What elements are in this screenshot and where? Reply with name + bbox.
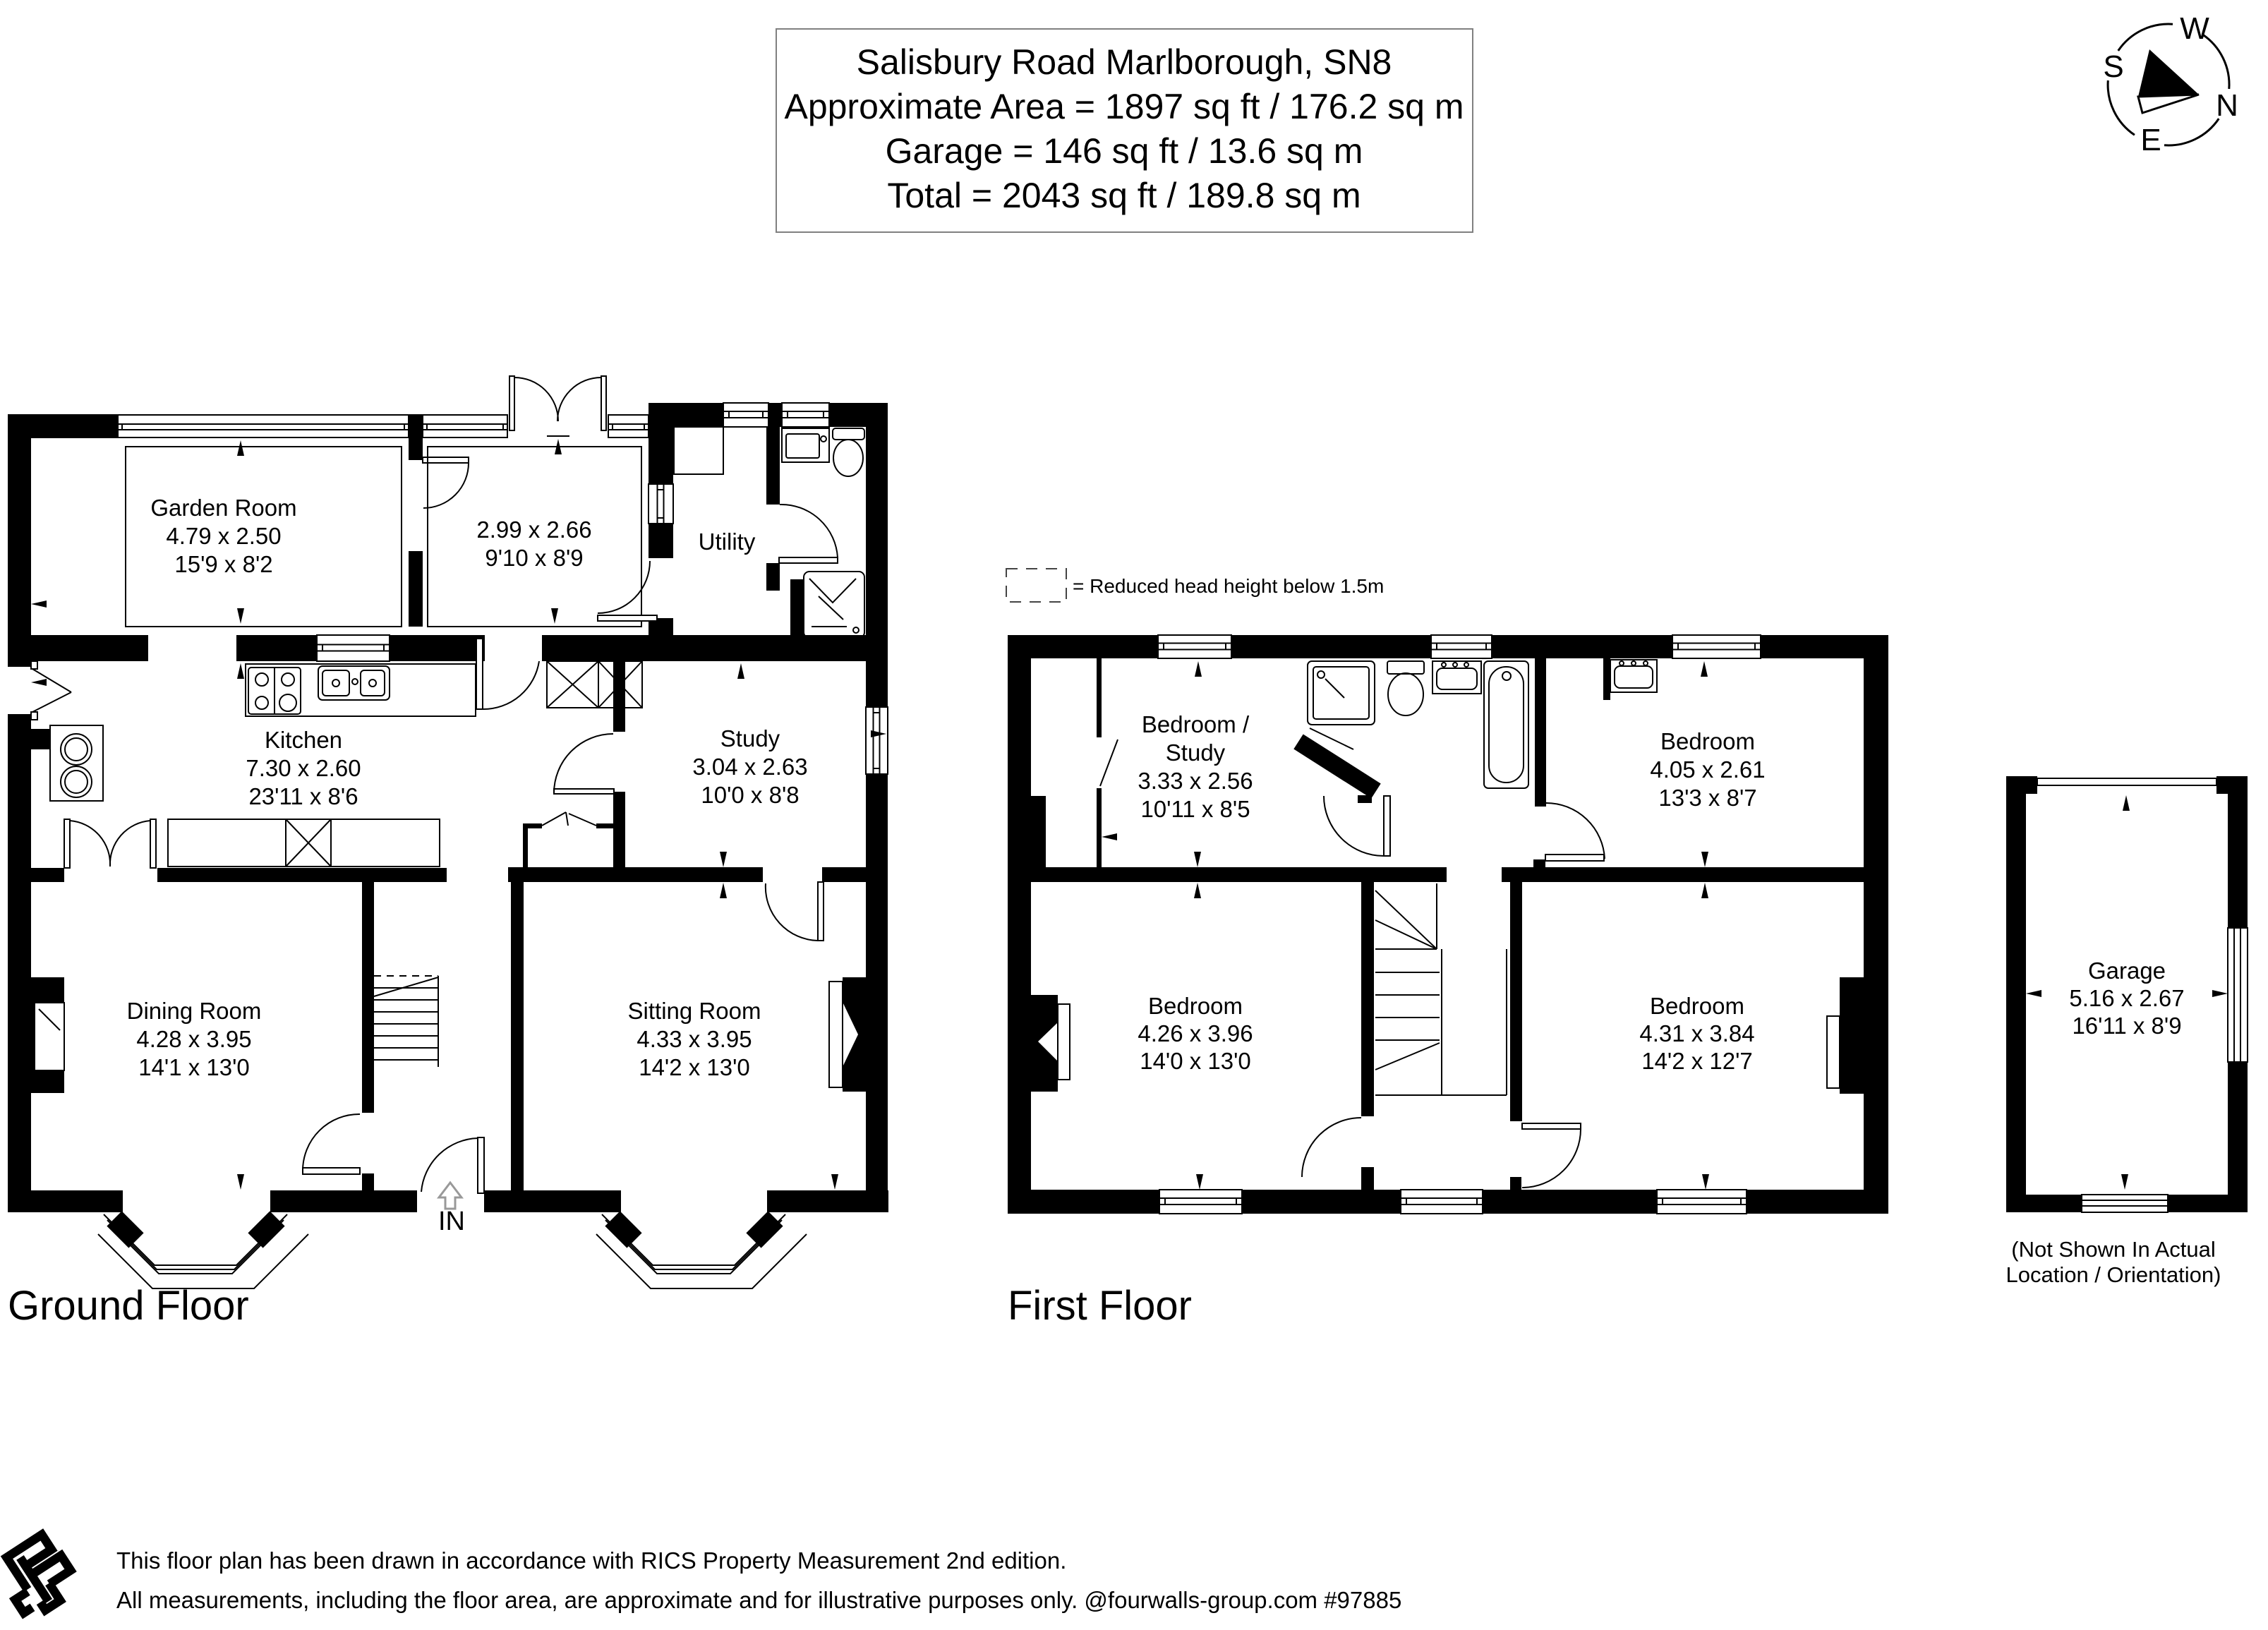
- svg-text:10'0 x 8'8: 10'0 x 8'8: [701, 782, 799, 808]
- svg-text:First Floor: First Floor: [1008, 1283, 1192, 1329]
- svg-text:10'11 x 8'5: 10'11 x 8'5: [1140, 796, 1250, 822]
- svg-text:14'0 x 13'0: 14'0 x 13'0: [1140, 1048, 1251, 1074]
- svg-text:All measurements, including th: All measurements, including the floor ar…: [116, 1587, 1401, 1613]
- svg-text:4.33 x 3.95: 4.33 x 3.95: [637, 1026, 752, 1052]
- svg-text:Kitchen: Kitchen: [265, 727, 342, 753]
- svg-text:2.99 x 2.66: 2.99 x 2.66: [476, 517, 591, 543]
- svg-text:Sitting Room: Sitting Room: [628, 998, 761, 1024]
- svg-text:14'2 x 13'0: 14'2 x 13'0: [639, 1054, 750, 1080]
- svg-text:Garden Room: Garden Room: [150, 495, 296, 521]
- svg-text:4.31 x 3.84: 4.31 x 3.84: [1639, 1020, 1754, 1046]
- svg-text:Approximate Area = 1897 sq ft: Approximate Area = 1897 sq ft / 176.2 sq…: [784, 87, 1464, 126]
- svg-text:W: W: [2180, 11, 2209, 46]
- svg-text:This floor plan has been drawn: This floor plan has been drawn in accord…: [116, 1547, 1066, 1574]
- svg-text:Bedroom: Bedroom: [1650, 993, 1744, 1019]
- svg-text:14'1 x 13'0: 14'1 x 13'0: [138, 1054, 250, 1080]
- svg-text:Utility: Utility: [699, 529, 756, 555]
- svg-text:IN: IN: [438, 1207, 465, 1236]
- svg-text:Location / Orientation): Location / Orientation): [2005, 1262, 2221, 1287]
- svg-text:Garage = 146 sq ft / 13.6 sq m: Garage = 146 sq ft / 13.6 sq m: [886, 131, 1363, 171]
- svg-text:4.28 x 3.95: 4.28 x 3.95: [136, 1026, 251, 1052]
- svg-text:4.26 x 3.96: 4.26 x 3.96: [1138, 1020, 1253, 1046]
- svg-text:Study: Study: [720, 725, 780, 751]
- svg-text:16'11 x 8'9: 16'11 x 8'9: [2072, 1013, 2181, 1039]
- svg-text:Bedroom: Bedroom: [1148, 993, 1243, 1019]
- svg-text:Bedroom /: Bedroom /: [1142, 711, 1250, 737]
- svg-text:= Reduced head height below 1.: = Reduced head height below 1.5m: [1073, 575, 1384, 597]
- svg-text:(Not Shown In Actual: (Not Shown In Actual: [2011, 1237, 2216, 1262]
- svg-text:14'2 x 12'7: 14'2 x 12'7: [1641, 1048, 1753, 1074]
- svg-text:4.79 x 2.50: 4.79 x 2.50: [166, 523, 281, 549]
- svg-text:Dining Room: Dining Room: [127, 998, 262, 1024]
- svg-text:Salisbury Road Marlborough, SN: Salisbury Road Marlborough, SN8: [857, 42, 1392, 82]
- svg-text:3.33 x 2.56: 3.33 x 2.56: [1138, 768, 1253, 794]
- svg-text:3.04 x 2.63: 3.04 x 2.63: [692, 754, 807, 780]
- svg-text:Total = 2043 sq ft / 189.8 sq: Total = 2043 sq ft / 189.8 sq m: [887, 176, 1361, 215]
- svg-text:7.30 x 2.60: 7.30 x 2.60: [246, 755, 361, 781]
- svg-text:23'11 x 8'6: 23'11 x 8'6: [248, 783, 358, 809]
- svg-text:S: S: [2103, 49, 2123, 84]
- svg-text:Bedroom: Bedroom: [1660, 728, 1755, 754]
- svg-text:9'10 x 8'9: 9'10 x 8'9: [485, 545, 583, 571]
- svg-text:13'3 x 8'7: 13'3 x 8'7: [1658, 785, 1756, 811]
- svg-text:Study: Study: [1166, 739, 1226, 766]
- svg-text:N: N: [2216, 88, 2238, 123]
- svg-text:E: E: [2140, 123, 2161, 157]
- svg-text:15'9 x 8'2: 15'9 x 8'2: [174, 551, 272, 577]
- svg-text:5.16 x 2.67: 5.16 x 2.67: [2069, 985, 2184, 1011]
- svg-text:4.05 x 2.61: 4.05 x 2.61: [1650, 756, 1765, 783]
- svg-text:Ground Floor: Ground Floor: [8, 1283, 249, 1329]
- svg-text:Garage: Garage: [2088, 958, 2166, 984]
